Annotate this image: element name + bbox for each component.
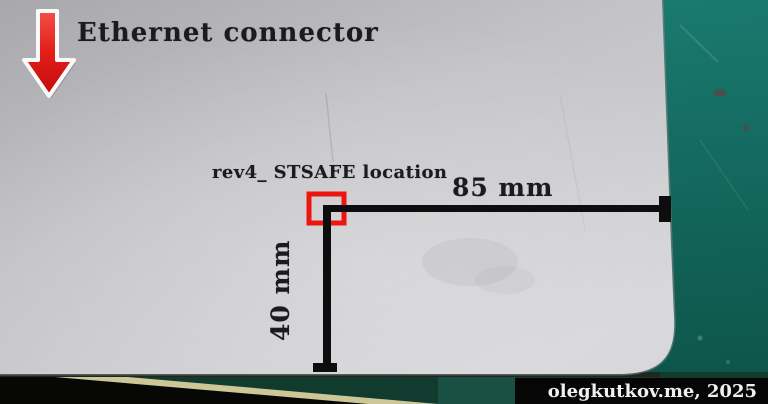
- horizontal-dimension-label: 85 mm: [452, 174, 553, 202]
- annotated-photo-scene: Ethernet connector rev4_ STSAFE location…: [0, 0, 768, 404]
- watermark-text: olegkutkov.me, 2025: [548, 381, 757, 402]
- dimension-endcap-right: [659, 196, 671, 222]
- panel-sheen: [0, 0, 674, 374]
- mat-speckle: [714, 89, 726, 97]
- stsafe-location-label: rev4_ STSAFE location: [212, 163, 447, 183]
- mat-speckle: [698, 336, 703, 341]
- mat-speckle: [742, 125, 750, 131]
- panel-smudge: [475, 266, 535, 294]
- dimension-endcap-bottom: [313, 363, 337, 372]
- mat-speckle: [726, 360, 730, 364]
- vertical-dimension-label: 40 mm: [267, 247, 293, 341]
- dimension-line-vertical: [323, 205, 331, 366]
- watermark-bar: olegkutkov.me, 2025: [515, 378, 768, 404]
- dimension-line-horizontal: [323, 205, 663, 212]
- photo-background: [0, 0, 768, 404]
- mat-strip: [438, 377, 516, 404]
- ethernet-connector-label: Ethernet connector: [77, 19, 379, 48]
